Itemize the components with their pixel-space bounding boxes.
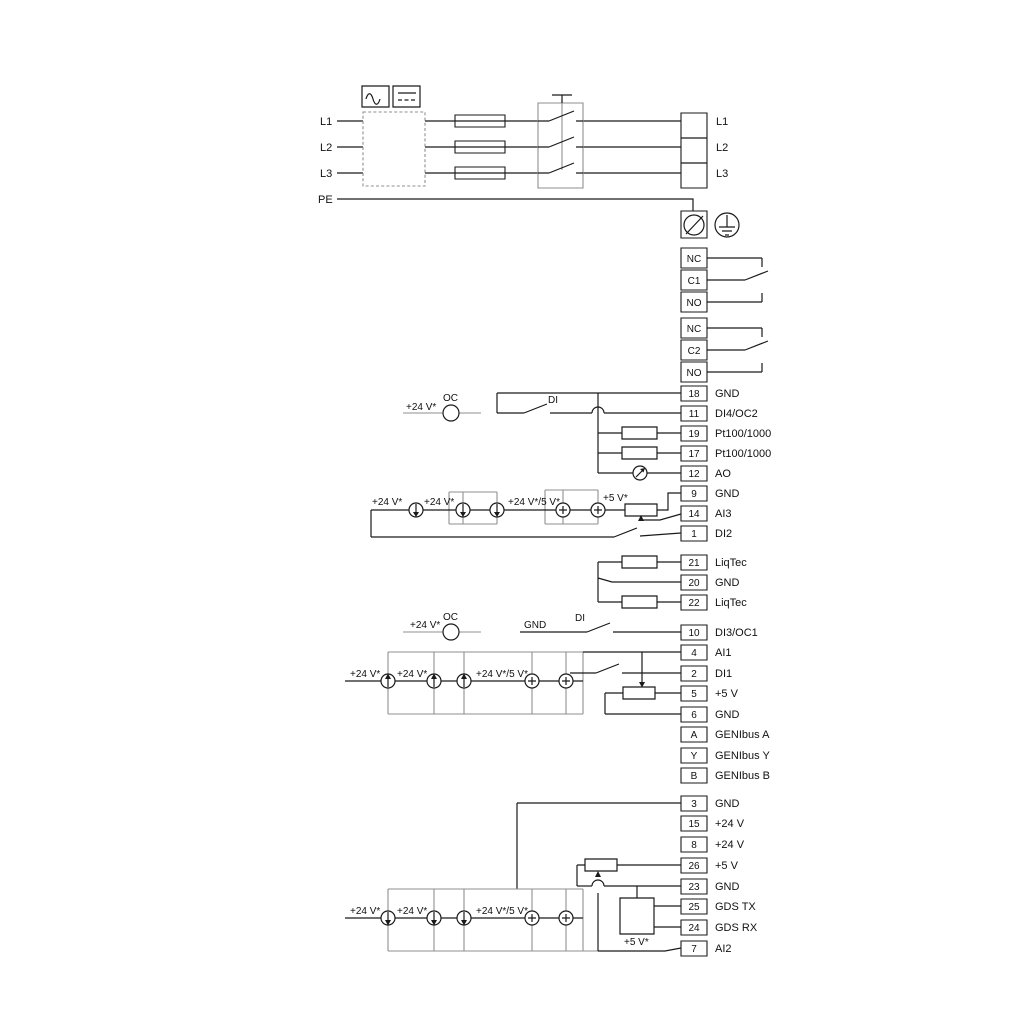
io1-wires: [403, 393, 681, 480]
terminal-label: Pt100/1000: [715, 448, 771, 460]
mains-wires: [337, 121, 681, 173]
annotation: OC: [443, 393, 458, 404]
terminal-number: NC: [687, 324, 701, 335]
emc-filter-box: [362, 86, 425, 186]
terminal-number: 15: [688, 819, 700, 830]
potentiometer-icon: [625, 504, 657, 516]
annotation: +24 V*: [424, 497, 454, 508]
io2-terminals: 10 4 2 5 6 A Y B DI3/OC1 AI1 DI1 +5 V GN…: [681, 625, 770, 783]
terminal-number: A: [691, 730, 698, 741]
pe-ground: [337, 199, 739, 238]
terminal-number: 18: [688, 389, 700, 400]
annotation: +5 V*: [624, 937, 649, 948]
switch-handle-icon: [552, 95, 572, 103]
terminal-number: 5: [691, 689, 697, 700]
terminal-box: [681, 113, 707, 188]
terminal-number: NO: [687, 368, 702, 379]
terminal-number: 17: [688, 449, 700, 460]
wire-hop: [592, 407, 681, 413]
terminal-number: 1: [691, 529, 697, 540]
annotation: +24 V*: [397, 906, 427, 917]
terminal-label: AO: [715, 468, 731, 480]
terminal-label: +24 V: [715, 839, 745, 851]
terminal-number: 2: [691, 669, 697, 680]
mains-terminal-block: L1 L2 L3: [681, 113, 728, 188]
io3-wires: [345, 803, 681, 951]
terminal-number: B: [691, 771, 698, 782]
terminal-label: DI1: [715, 668, 732, 680]
terminal-number: 20: [688, 578, 700, 589]
io-block1: 18 11 19 17 12 9 14 1 GND DI4/OC2 Pt100/…: [371, 386, 771, 541]
terminal-label: GND: [715, 881, 740, 893]
terminal-number: 22: [688, 598, 700, 609]
terminal-number: 4: [691, 648, 697, 659]
terminal-label: GND: [715, 798, 740, 810]
liqtec-sensor-icon: [622, 556, 657, 568]
pe-wire: [337, 199, 693, 211]
terminal-label: +5 V: [715, 860, 739, 872]
terminal-number: C2: [688, 346, 701, 357]
terminal-label: AI3: [715, 508, 732, 520]
terminal-number: 24: [688, 923, 700, 934]
filter-dashed-box: [363, 112, 425, 186]
terminal-number: 7: [691, 944, 697, 955]
terminal-number: 3: [691, 799, 697, 810]
terminal-label: GND: [715, 577, 740, 589]
liqtec-block: 21 20 22 LiqTec GND LiqTec: [598, 555, 747, 610]
annotation: +24 V*: [410, 620, 440, 631]
potentiometer-icon: [585, 859, 617, 871]
fuses: [455, 115, 505, 179]
terminal-label: AI1: [715, 647, 732, 659]
terminal-label: GDS TX: [715, 901, 756, 913]
annotation: DI: [548, 395, 558, 406]
annotation: +24 V*/5 V*: [508, 497, 560, 508]
io3-annotations: +24 V* +24 V* +24 V*/5 V* +5 V*: [350, 906, 649, 948]
terminal-number: 12: [688, 469, 700, 480]
annotation: +24 V*: [350, 669, 380, 680]
io3-terminals: 3 15 8 26 23 25 24 7 GND +24 V +24 V +5 …: [681, 796, 758, 956]
main-switch: [538, 95, 583, 188]
annotation: +24 V*: [397, 669, 427, 680]
io-block3: 3 15 8 26 23 25 24 7 GND +24 V +24 V +5 …: [345, 796, 758, 956]
mains-in-label-l3: L3: [320, 168, 332, 180]
terminal-number: 11: [689, 409, 700, 420]
terminal-label: GND: [715, 488, 740, 500]
terminal-label: GND: [715, 709, 740, 721]
annotation: OC: [443, 612, 458, 623]
terminal-number: 23: [688, 882, 700, 893]
annotation: +5 V*: [603, 493, 628, 504]
pt100-resistor-icon: [622, 427, 657, 439]
terminal-label: GDS RX: [715, 922, 758, 934]
io2-annotations: +24 V* OC GND DI +24 V* +24 V* +24 V*/5 …: [350, 612, 585, 680]
open-collector-icon: [443, 405, 459, 421]
terminal-number: 8: [691, 840, 697, 851]
relay1-block: NC C1 NO: [681, 248, 768, 312]
io1-annotations: +24 V* OC DI +24 V* +24 V* +24 V*/5 V* +…: [372, 393, 628, 508]
annotation: +24 V*: [350, 906, 380, 917]
mains-input-section: L1 L2 L3 PE: [318, 86, 739, 238]
terminal-label: Pt100/1000: [715, 428, 771, 440]
terminal-label: +5 V: [715, 688, 739, 700]
terminal-number: NO: [687, 298, 702, 309]
terminal-label: LiqTec: [715, 597, 747, 609]
mains-in-label-pe: PE: [318, 194, 333, 206]
terminal-label: GND: [715, 388, 740, 400]
terminal-number: 19: [688, 429, 700, 440]
annotation: +24 V*/5 V*: [476, 906, 528, 917]
terminal-number: 26: [688, 861, 700, 872]
terminal-number: C1: [688, 276, 701, 287]
dc-symbol-box: [393, 86, 420, 107]
terminal-label: +24 V: [715, 818, 745, 830]
terminal-label: GENIbus A: [715, 729, 770, 741]
wiring-diagram: L1 L2 L3 PE: [0, 0, 1024, 1024]
switch-box: [538, 103, 583, 188]
annotation: +24 V*: [406, 402, 436, 413]
wire-hop: [592, 880, 681, 886]
terminal-label: AI2: [715, 943, 732, 955]
terminal-label: GENIbus Y: [715, 750, 770, 762]
mains-in-label-l2: L2: [320, 142, 332, 154]
liqtec-wires: [598, 556, 681, 608]
annotation: GND: [524, 620, 546, 631]
terminal-number: 25: [688, 902, 700, 913]
terminal-label: L2: [716, 142, 728, 154]
liqtec-sensor-icon: [622, 596, 657, 608]
terminal-label: GENIbus B: [715, 770, 770, 782]
relay2-block: NC C2 NO: [681, 318, 768, 382]
annotation: DI: [575, 613, 585, 624]
io1-terminals: 18 11 19 17 12 9 14 1 GND DI4/OC2 Pt100/…: [681, 386, 771, 541]
arrow-down-icon: [385, 920, 467, 926]
terminal-number: Y: [691, 751, 698, 762]
pt100-resistor-icon: [622, 447, 657, 459]
terminal-label: L3: [716, 168, 728, 180]
terminal-label: DI2: [715, 528, 732, 540]
terminal-number: 21: [688, 558, 700, 569]
annotation: +24 V*: [372, 497, 402, 508]
terminal-label: DI3/OC1: [715, 627, 758, 639]
io-block2: 10 4 2 5 6 A Y B DI3/OC1 AI1 DI1 +5 V GN…: [345, 612, 770, 783]
relay1-contact: [707, 258, 768, 302]
terminal-number: 14: [688, 509, 700, 520]
terminal-label: L1: [716, 116, 728, 128]
terminal-number: 9: [691, 489, 697, 500]
mains-in-label-l1: L1: [320, 116, 332, 128]
open-collector-icon: [443, 624, 459, 640]
gds-sensor-box: [620, 898, 654, 934]
potentiometer-icon: [623, 687, 655, 699]
terminal-number: 10: [688, 628, 700, 639]
terminal-number: NC: [687, 254, 701, 265]
relay2-contact: [707, 328, 768, 372]
annotation: +24 V*/5 V*: [476, 669, 528, 680]
terminal-number: 6: [691, 710, 697, 721]
terminal-label: LiqTec: [715, 557, 747, 569]
terminal-label: DI4/OC2: [715, 408, 758, 420]
wiper-arrow-icon: [595, 871, 601, 877]
